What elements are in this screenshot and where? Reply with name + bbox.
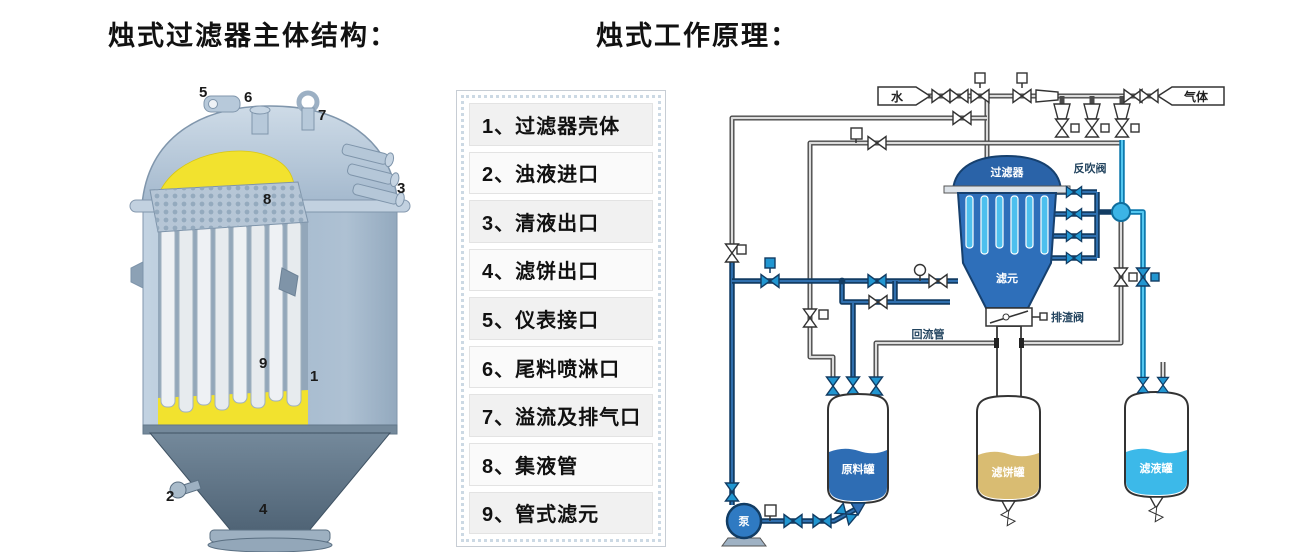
ball-junction <box>1112 203 1130 221</box>
feed-tank-label: 原料罐 <box>842 462 875 476</box>
part-item-3: 3、清液出口 <box>469 200 653 243</box>
water-tag: 水 <box>878 87 930 105</box>
filter-label: 过滤器 <box>991 165 1025 179</box>
callout-9: 9 <box>259 355 267 372</box>
pump-label: 泵 <box>739 515 750 528</box>
callout-8: 8 <box>263 191 271 208</box>
part-item-2: 2、浊液进口 <box>469 152 653 195</box>
cake-tank-label: 滤饼罐 <box>992 465 1025 479</box>
filtrate-piping <box>1122 140 1143 378</box>
callout-5: 5 <box>199 84 207 101</box>
principle-diagram: 过滤器 滤元 排渣阀 回流管 水 气体 <box>690 60 1310 552</box>
filtrate-tank-label: 滤液罐 <box>1140 461 1173 475</box>
slag-discharge-valve: 排渣阀 <box>986 308 1084 397</box>
vessel-cone <box>150 433 390 532</box>
callout-7: 7 <box>318 107 326 124</box>
bottom-flange <box>208 538 332 552</box>
part-item-7: 7、溢流及排气口 <box>469 394 653 437</box>
gas-label: 气体 <box>1183 89 1209 104</box>
callout-1: 1 <box>310 368 318 385</box>
callout-6: 6 <box>244 89 252 106</box>
backblow-manifold <box>1052 192 1112 258</box>
support-bracket-left <box>131 262 143 288</box>
principle-section-title: 烛式工作原理： <box>596 14 799 53</box>
part-item-8: 8、集液管 <box>469 443 653 486</box>
page: 烛式过滤器主体结构： 烛式工作原理： <box>0 0 1310 552</box>
part-item-4: 4、滤饼出口 <box>469 249 653 292</box>
structure-diagram: 5 6 7 3 8 9 1 2 4 <box>120 62 440 552</box>
gas-distributor-units <box>1054 104 1139 137</box>
feed-tank: 原料罐 <box>827 377 889 525</box>
callout-3: 3 <box>397 180 405 197</box>
structure-section-title: 烛式过滤器主体结构： <box>108 14 398 53</box>
filtrate-tank: 滤液罐 <box>1125 377 1188 521</box>
instrument-nozzle <box>204 96 240 112</box>
part-item-9: 9、管式滤元 <box>469 492 653 535</box>
feed-line-valves <box>726 244 948 327</box>
gas-tag: 气体 <box>1158 87 1224 105</box>
part-item-5: 5、仪表接口 <box>469 297 653 340</box>
parts-list-panel: 1、过滤器壳体 2、浊液进口 3、清液出口 4、滤饼出口 5、仪表接口 6、尾料… <box>456 90 666 547</box>
drop-line-valves <box>1115 268 1160 286</box>
return-pipe-label: 回流管 <box>912 327 945 341</box>
overflow-vent-nozzle <box>299 93 317 130</box>
filter-elements-label: 滤元 <box>996 271 1018 285</box>
cake-outlet-nozzle <box>170 480 201 498</box>
filter-vessel: 过滤器 滤元 <box>944 156 1070 308</box>
callout-4: 4 <box>259 501 268 518</box>
spray-nozzle <box>250 106 270 134</box>
part-item-6: 6、尾料喷淋口 <box>469 346 653 389</box>
callout-2: 2 <box>166 488 174 505</box>
pump: 泵 <box>722 483 831 546</box>
part-item-1: 1、过滤器壳体 <box>469 103 653 146</box>
slag-discharge-label: 排渣阀 <box>1051 310 1084 324</box>
gas-line-valves <box>851 73 1158 150</box>
water-label: 水 <box>891 89 904 104</box>
parts-list: 1、过滤器壳体 2、浊液进口 3、清液出口 4、滤饼出口 5、仪表接口 6、尾料… <box>461 95 661 542</box>
cake-tank: 滤饼罐 <box>977 396 1040 526</box>
filter-tube-sheet <box>944 186 1070 193</box>
backblow-label: 反吹阀 <box>1074 161 1107 175</box>
